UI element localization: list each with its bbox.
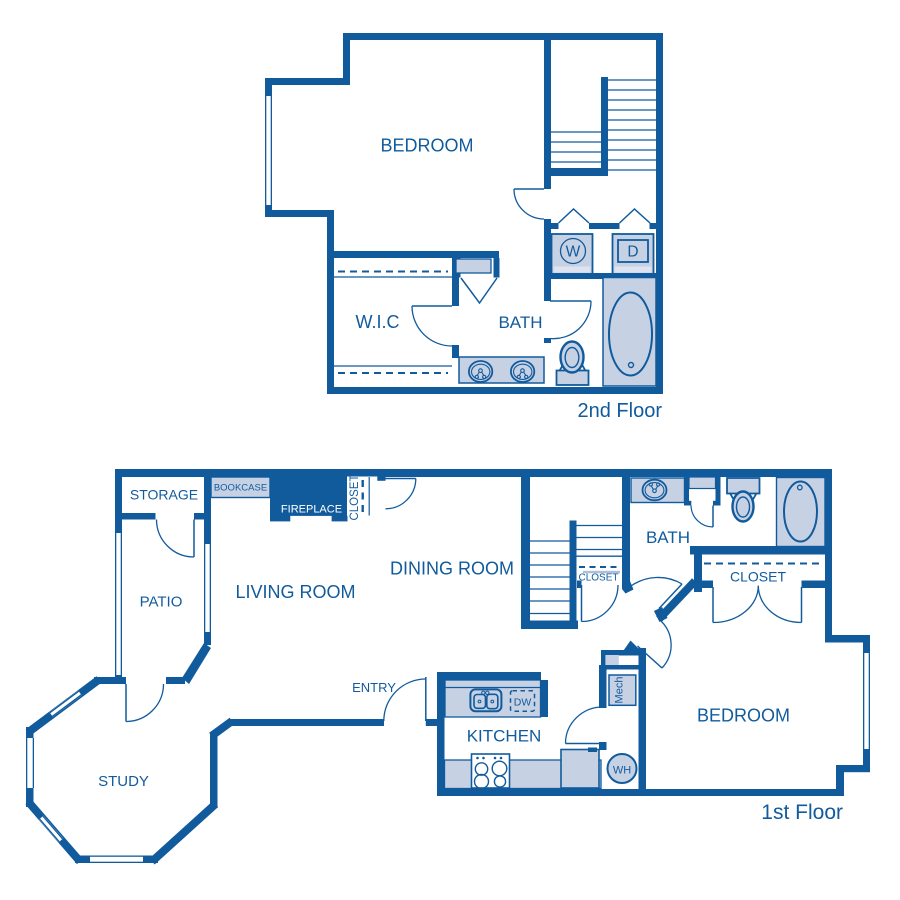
svg-text:PATIO: PATIO [140, 594, 183, 611]
svg-text:KITCHEN: KITCHEN [467, 727, 542, 746]
svg-text:DW: DW [514, 697, 532, 709]
svg-text:CLOSET: CLOSET [349, 474, 361, 520]
svg-text:FIREPLACE: FIREPLACE [281, 503, 342, 515]
svg-text:ENTRY: ENTRY [352, 680, 396, 695]
svg-text:STUDY: STUDY [98, 773, 149, 790]
svg-text:BATH: BATH [646, 528, 690, 547]
svg-text:BATH: BATH [498, 313, 542, 332]
svg-text:WH: WH [613, 765, 631, 777]
svg-text:D: D [627, 244, 638, 261]
svg-text:Mech: Mech [614, 677, 626, 704]
svg-text:BEDROOM: BEDROOM [380, 136, 473, 156]
svg-text:LIVING ROOM: LIVING ROOM [235, 582, 355, 602]
svg-text:BEDROOM: BEDROOM [697, 706, 790, 726]
svg-text:1st Floor: 1st Floor [761, 801, 843, 824]
svg-text:2nd Floor: 2nd Floor [578, 400, 663, 422]
svg-text:STORAGE: STORAGE [130, 487, 198, 503]
svg-text:W: W [566, 244, 581, 261]
svg-text:CLOSET: CLOSET [578, 573, 618, 584]
svg-text:CLOSET: CLOSET [730, 569, 786, 585]
svg-text:W.I.C: W.I.C [356, 312, 400, 332]
svg-text:BOOKCASE: BOOKCASE [214, 483, 267, 494]
svg-text:DINING ROOM: DINING ROOM [390, 559, 514, 579]
